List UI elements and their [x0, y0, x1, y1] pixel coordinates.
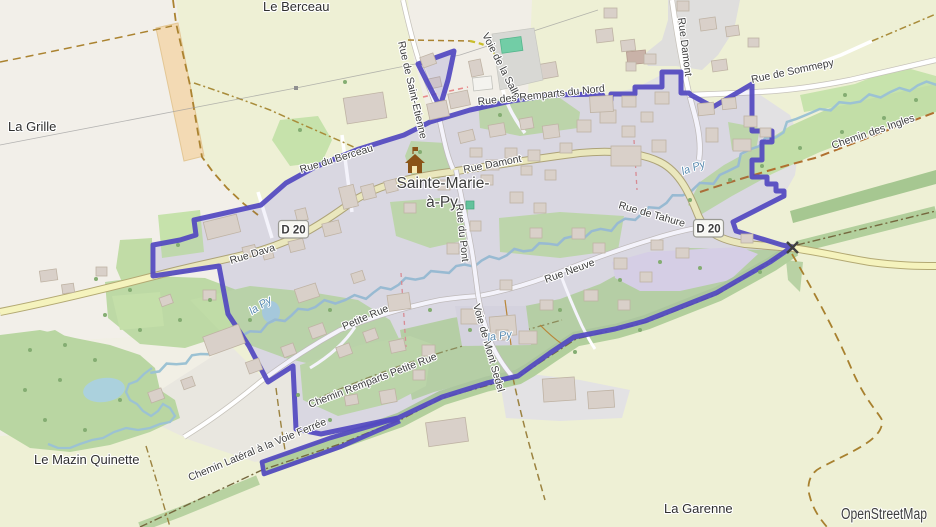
svg-text:D 20: D 20: [696, 224, 720, 236]
svg-text:La Garenne: La Garenne: [664, 501, 733, 516]
svg-text:Sainte-Marie-: Sainte-Marie-: [396, 175, 489, 192]
svg-text:Le Mazin Quinette: Le Mazin Quinette: [34, 452, 140, 467]
svg-text:D 20: D 20: [281, 225, 305, 237]
svg-text:Le Berceau: Le Berceau: [263, 0, 330, 14]
svg-text:La Grille: La Grille: [8, 119, 56, 134]
svg-text:à-Py: à-Py: [426, 194, 458, 211]
svg-text:OpenStreetMap: OpenStreetMap: [841, 506, 927, 523]
